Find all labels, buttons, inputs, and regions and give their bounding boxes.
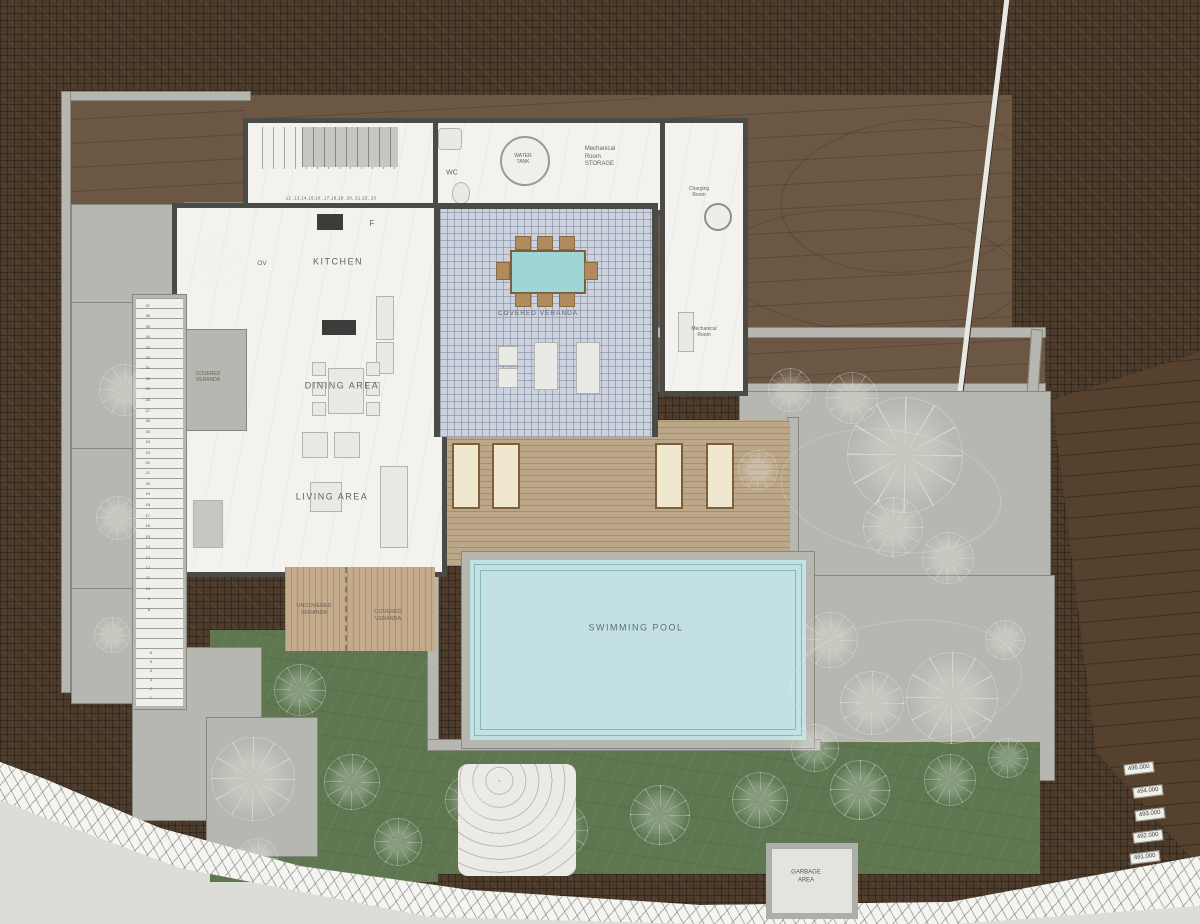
sun-lounger (706, 443, 734, 509)
label-swimming-pool: SWIMMING POOL (588, 622, 683, 633)
kitchen-island (376, 296, 394, 340)
room-label-living: LIVING AREA (296, 491, 369, 502)
pool-rim (480, 570, 796, 730)
terrace-northwest (70, 95, 246, 207)
sun-lounger (452, 443, 480, 509)
sun-lounger (655, 443, 683, 509)
sofa (380, 466, 408, 548)
veranda-chair (515, 236, 531, 250)
entry-fixture (193, 500, 223, 548)
room-label-mech-storage: Mechanical Room STORAGE (585, 146, 615, 169)
tree-icon (988, 738, 1028, 778)
tree-icon (324, 754, 380, 810)
veranda-chair (559, 236, 575, 250)
veranda-cushion (498, 346, 518, 366)
stairs-west-numbers-b: 27 26 25 24 23 22 21 20 19 18 (138, 406, 150, 510)
tree-icon (94, 617, 130, 653)
veranda-dining-table (510, 250, 586, 294)
veranda-cushion (498, 368, 518, 388)
room-label-mechanical: Mechanical Room (691, 326, 716, 339)
label-water-tank: WATER TANK (514, 153, 532, 166)
tree-icon (211, 737, 295, 821)
wc-toilet (452, 182, 470, 204)
label-veranda-main: COVERED VERANDA (498, 310, 578, 318)
tree-icon (374, 818, 422, 866)
tree-icon (189, 236, 241, 288)
tree-icon (732, 772, 788, 828)
dining-chair (366, 362, 380, 376)
label-veranda-west: COVERED VERANDA (196, 371, 221, 384)
kitchen-appliance (322, 320, 356, 335)
label-oven: OV (257, 260, 266, 268)
room-label-kitchen: KITCHEN (313, 256, 363, 267)
tree-icon (768, 368, 812, 412)
dining-chair (312, 402, 326, 416)
pool-deck (436, 420, 790, 566)
veranda-lounge-chair (534, 342, 558, 390)
veranda-chair (496, 262, 510, 280)
boundary-wall-top (62, 92, 250, 100)
veranda-chair (537, 236, 553, 250)
tree-icon (445, 775, 495, 825)
tree-icon (532, 802, 588, 858)
armchair (334, 432, 360, 458)
tree-icon (274, 664, 326, 716)
tree-icon (924, 754, 976, 806)
wc-sink (438, 128, 462, 150)
tree-icon (630, 785, 690, 845)
stairs-west-numbers-a: 37 36 35 34 33 32 31 30 29 28 (138, 301, 150, 405)
veranda-lounge-chair (576, 342, 600, 394)
room-label-dining: DINING AREA (305, 380, 380, 391)
room-label-charging: Charging Room (689, 186, 709, 199)
veranda-chair (584, 262, 598, 280)
tree-icon (96, 496, 140, 540)
room-label-wc: WC (446, 170, 458, 179)
label-fridge: F (370, 219, 375, 229)
dining-chair (312, 362, 326, 376)
veranda-chair (559, 293, 575, 307)
stairs-top-numbers: 12 ,13,14,15,16 ,17,18,19, 20, 21,22, 23 (286, 195, 377, 200)
veranda-chair (515, 293, 531, 307)
tree-icon (830, 760, 890, 820)
planter-west-1 (72, 205, 182, 307)
armchair (302, 432, 328, 458)
site-plan: KITCHEN DINING AREA LIVING AREA WC WATER… (0, 0, 1200, 924)
room-charging-corridor (660, 118, 748, 396)
dining-chair (366, 402, 380, 416)
label-veranda-south: COVERED VERANDA (374, 609, 401, 623)
boundary-wall-west (62, 92, 70, 692)
stairs-interior-upper-flight (302, 127, 398, 167)
stairs-west-numbers-c: 17 16 15 14 13 12 11 10 9 8 (138, 511, 150, 615)
swimming-pool (462, 552, 814, 748)
label-garbage-area: GARBAGE AREA (791, 870, 821, 885)
sun-lounger (492, 443, 520, 509)
stairs-west-numbers-d: 6 5 4 3 2 1 (140, 648, 152, 702)
label-uncovered-veranda: UNCOVERED VERANDA (296, 603, 331, 617)
tree-icon (826, 372, 878, 424)
veranda-chair (537, 293, 553, 307)
kitchen-hob (317, 214, 343, 230)
tree-icon (738, 450, 778, 490)
charging-fixture (704, 203, 732, 231)
